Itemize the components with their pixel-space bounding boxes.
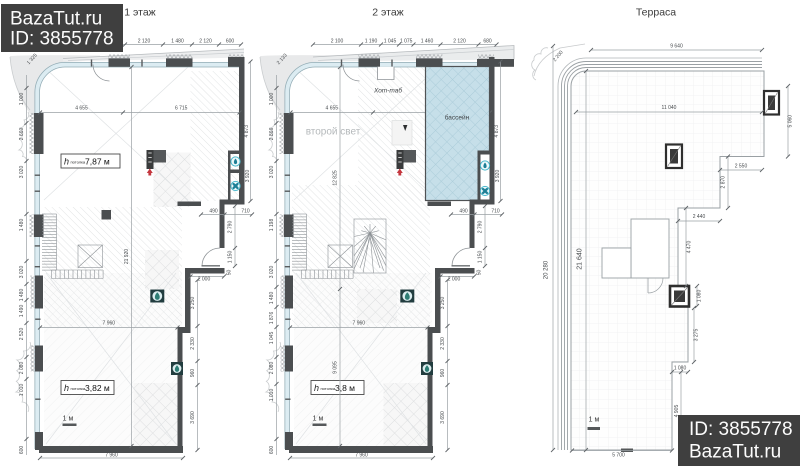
svg-text:1 480: 1 480 (269, 292, 275, 305)
svg-text:20 280: 20 280 (544, 260, 550, 279)
svg-text:1 150: 1 150 (228, 251, 234, 264)
svg-text:1 150: 1 150 (478, 251, 484, 264)
svg-text:5 060: 5 060 (788, 115, 794, 128)
svg-text:7,87 м: 7,87 м (85, 157, 110, 167)
svg-text:11 040: 11 040 (662, 105, 677, 111)
svg-text:2 520: 2 520 (19, 328, 25, 341)
svg-text:3,8 м: 3,8 м (335, 383, 355, 393)
svg-text:600: 600 (19, 446, 25, 455)
svg-text:потолка: потолка (71, 386, 86, 391)
svg-text:2 100: 2 100 (331, 38, 344, 44)
svg-text:7 960: 7 960 (105, 452, 118, 458)
svg-text:1 м: 1 м (313, 416, 324, 423)
svg-text:1 480: 1 480 (171, 38, 184, 44)
svg-text:потолка: потолка (71, 160, 86, 165)
svg-text:2 330: 2 330 (440, 337, 446, 350)
svg-text:4 873: 4 873 (244, 125, 250, 138)
svg-text:1 190: 1 190 (365, 38, 378, 44)
svg-text:1 490: 1 490 (19, 305, 25, 318)
svg-text:3 250: 3 250 (190, 297, 196, 310)
svg-text:5 700: 5 700 (612, 453, 625, 459)
svg-text:3 250: 3 250 (440, 297, 446, 310)
svg-text:2 120: 2 120 (199, 38, 212, 44)
svg-text:1 480: 1 480 (19, 289, 25, 302)
svg-text:3 275: 3 275 (694, 329, 700, 342)
svg-text:BazaTut.ru: BazaTut.ru (689, 442, 781, 463)
svg-text:7 960: 7 960 (355, 452, 368, 458)
svg-text:7 960: 7 960 (103, 321, 116, 327)
svg-text:потолка: потолка (321, 386, 336, 391)
svg-text:3,82 м: 3,82 м (85, 383, 110, 393)
svg-text:2 790: 2 790 (228, 221, 234, 234)
svg-text:1 этаж: 1 этаж (124, 7, 155, 19)
svg-text:50: 50 (477, 270, 483, 276)
svg-text:9 095: 9 095 (333, 361, 339, 374)
svg-text:Хот-таб: Хот-таб (373, 87, 402, 95)
svg-text:2 120: 2 120 (138, 38, 151, 44)
svg-text:2 550: 2 550 (735, 164, 748, 170)
svg-text:h: h (314, 383, 319, 393)
svg-text:4 470: 4 470 (687, 241, 693, 254)
svg-text:960: 960 (440, 369, 446, 378)
svg-text:1 198: 1 198 (269, 219, 275, 232)
svg-text:1 м: 1 м (589, 417, 600, 424)
svg-text:4 873: 4 873 (494, 125, 500, 138)
svg-text:2 330: 2 330 (190, 337, 196, 350)
svg-text:9 640: 9 640 (670, 44, 683, 50)
svg-text:2 080: 2 080 (19, 362, 25, 375)
svg-text:2 870: 2 870 (721, 176, 727, 189)
svg-text:960: 960 (190, 369, 196, 378)
svg-text:1 010: 1 010 (269, 389, 275, 402)
svg-text:ID: 3855778: ID: 3855778 (689, 419, 793, 440)
svg-text:3 020: 3 020 (269, 166, 275, 179)
svg-text:21 640: 21 640 (577, 248, 584, 270)
svg-text:1 000: 1 000 (269, 93, 275, 106)
svg-text:680: 680 (483, 38, 492, 44)
svg-text:1 075: 1 075 (400, 38, 413, 44)
svg-text:1 010: 1 010 (19, 384, 25, 397)
svg-text:4 655: 4 655 (75, 106, 88, 112)
svg-text:490: 490 (209, 209, 218, 215)
svg-text:1 876: 1 876 (269, 312, 275, 325)
svg-text:1 045: 1 045 (384, 38, 397, 44)
svg-text:600: 600 (226, 38, 235, 44)
svg-text:3 920: 3 920 (245, 170, 251, 183)
svg-text:710: 710 (491, 209, 500, 215)
svg-text:3 020: 3 020 (269, 266, 275, 279)
svg-text:7 960: 7 960 (353, 321, 366, 327)
svg-text:12 825: 12 825 (333, 170, 339, 186)
svg-text:2 080: 2 080 (269, 362, 275, 375)
svg-text:2 790: 2 790 (478, 221, 484, 234)
svg-text:6 715: 6 715 (175, 106, 188, 112)
svg-text:3 020: 3 020 (19, 266, 25, 279)
svg-text:1 460: 1 460 (421, 38, 434, 44)
svg-text:1 000: 1 000 (19, 93, 25, 106)
svg-text:600: 600 (269, 446, 275, 455)
svg-text:1 045: 1 045 (269, 332, 275, 345)
svg-text:2 120: 2 120 (453, 38, 466, 44)
svg-text:2 660: 2 660 (19, 128, 25, 141)
svg-text:50: 50 (227, 270, 233, 276)
svg-text:2 866: 2 866 (269, 128, 275, 141)
svg-text:Терраса: Терраса (636, 7, 676, 19)
svg-text:3 020: 3 020 (19, 166, 25, 179)
svg-text:1 080: 1 080 (674, 366, 687, 372)
svg-text:1 480: 1 480 (19, 219, 25, 232)
svg-text:3 920: 3 920 (495, 170, 501, 183)
svg-text:2 440: 2 440 (693, 214, 706, 220)
svg-text:4 655: 4 655 (326, 106, 339, 112)
svg-text:1 080: 1 080 (697, 290, 703, 303)
svg-text:h: h (64, 383, 69, 393)
svg-text:h: h (64, 157, 69, 167)
svg-text:ID: 3855778: ID: 3855778 (10, 29, 114, 50)
svg-text:BazaTut.ru: BazaTut.ru (10, 9, 102, 30)
svg-text:2 000: 2 000 (198, 277, 211, 283)
svg-text:21 920: 21 920 (124, 249, 130, 265)
svg-text:3 690: 3 690 (440, 411, 446, 424)
svg-text:второй свет: второй свет (306, 127, 361, 138)
svg-text:710: 710 (241, 209, 250, 215)
svg-text:бассейн: бассейн (445, 114, 470, 122)
svg-text:490: 490 (459, 209, 468, 215)
svg-text:2 000: 2 000 (448, 277, 461, 283)
svg-text:1 м: 1 м (63, 416, 74, 423)
svg-text:3 690: 3 690 (190, 411, 196, 424)
svg-text:2 этаж: 2 этаж (372, 7, 403, 19)
